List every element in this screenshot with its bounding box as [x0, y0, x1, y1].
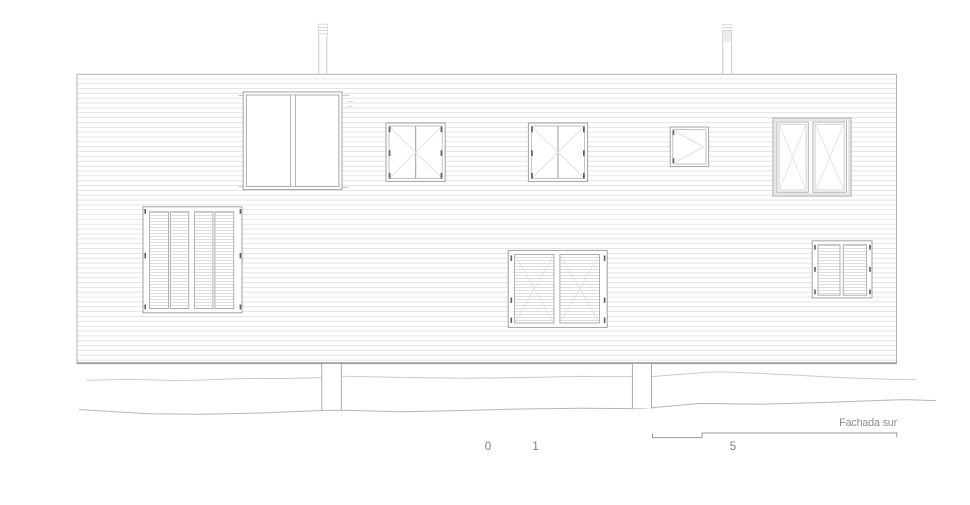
svg-text:5: 5: [730, 441, 736, 453]
svg-text:Fachada sur: Fachada sur: [839, 417, 897, 429]
svg-text:1: 1: [532, 441, 538, 453]
svg-text:0: 0: [485, 441, 491, 453]
